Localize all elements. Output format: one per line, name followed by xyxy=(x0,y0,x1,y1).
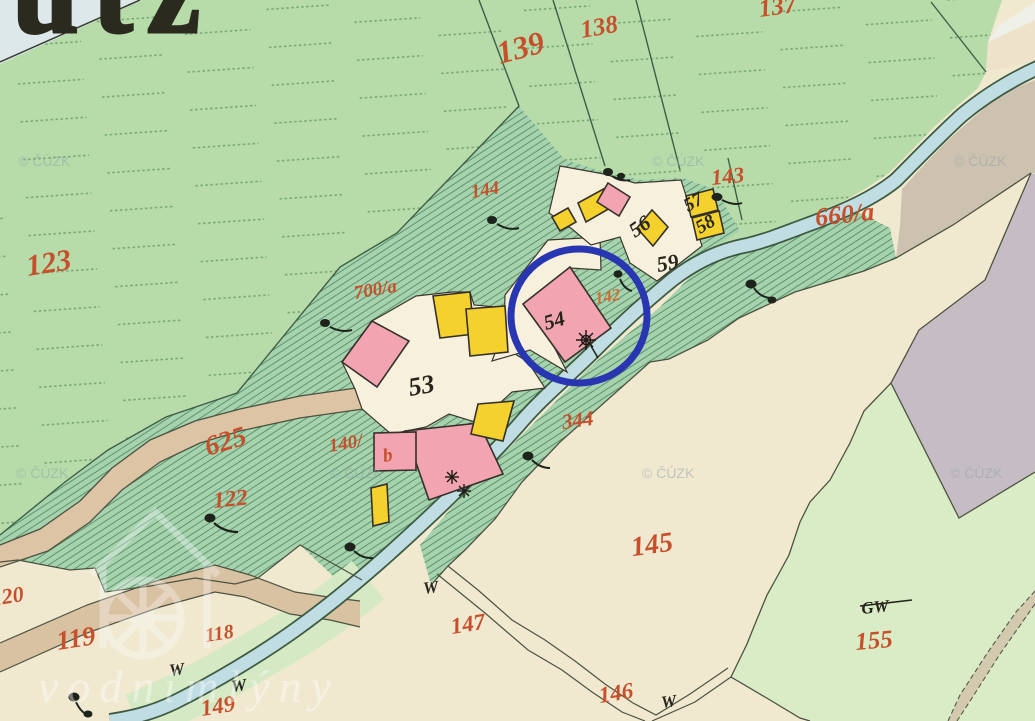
svg-text:© ČÚZK: © ČÚZK xyxy=(950,465,1003,481)
svg-text:59: 59 xyxy=(655,248,681,276)
svg-text:© ČÚZK: © ČÚZK xyxy=(954,153,1007,169)
svg-text:53: 53 xyxy=(406,369,437,402)
svg-text:122: 122 xyxy=(212,485,249,513)
svg-text:119: 119 xyxy=(54,620,98,656)
svg-text:utz: utz xyxy=(12,0,214,58)
svg-text:145: 145 xyxy=(629,527,675,564)
svg-text:© ČÚZK: © ČÚZK xyxy=(18,153,71,169)
svg-text:© ČÚZK: © ČÚZK xyxy=(330,465,383,481)
svg-text:© ČÚZK: © ČÚZK xyxy=(652,153,705,169)
svg-text:© ČÚZK: © ČÚZK xyxy=(642,465,695,481)
svg-text:vodnímlýny: vodnímlýny xyxy=(38,661,340,712)
svg-text:© ČÚZK: © ČÚZK xyxy=(16,465,69,481)
svg-text:155: 155 xyxy=(854,626,894,656)
svg-text:660/a: 660/a xyxy=(814,197,876,232)
svg-text:123: 123 xyxy=(24,243,74,283)
svg-text:GW: GW xyxy=(860,596,891,618)
svg-text:344: 344 xyxy=(559,406,595,434)
svg-text:143: 143 xyxy=(710,162,745,190)
